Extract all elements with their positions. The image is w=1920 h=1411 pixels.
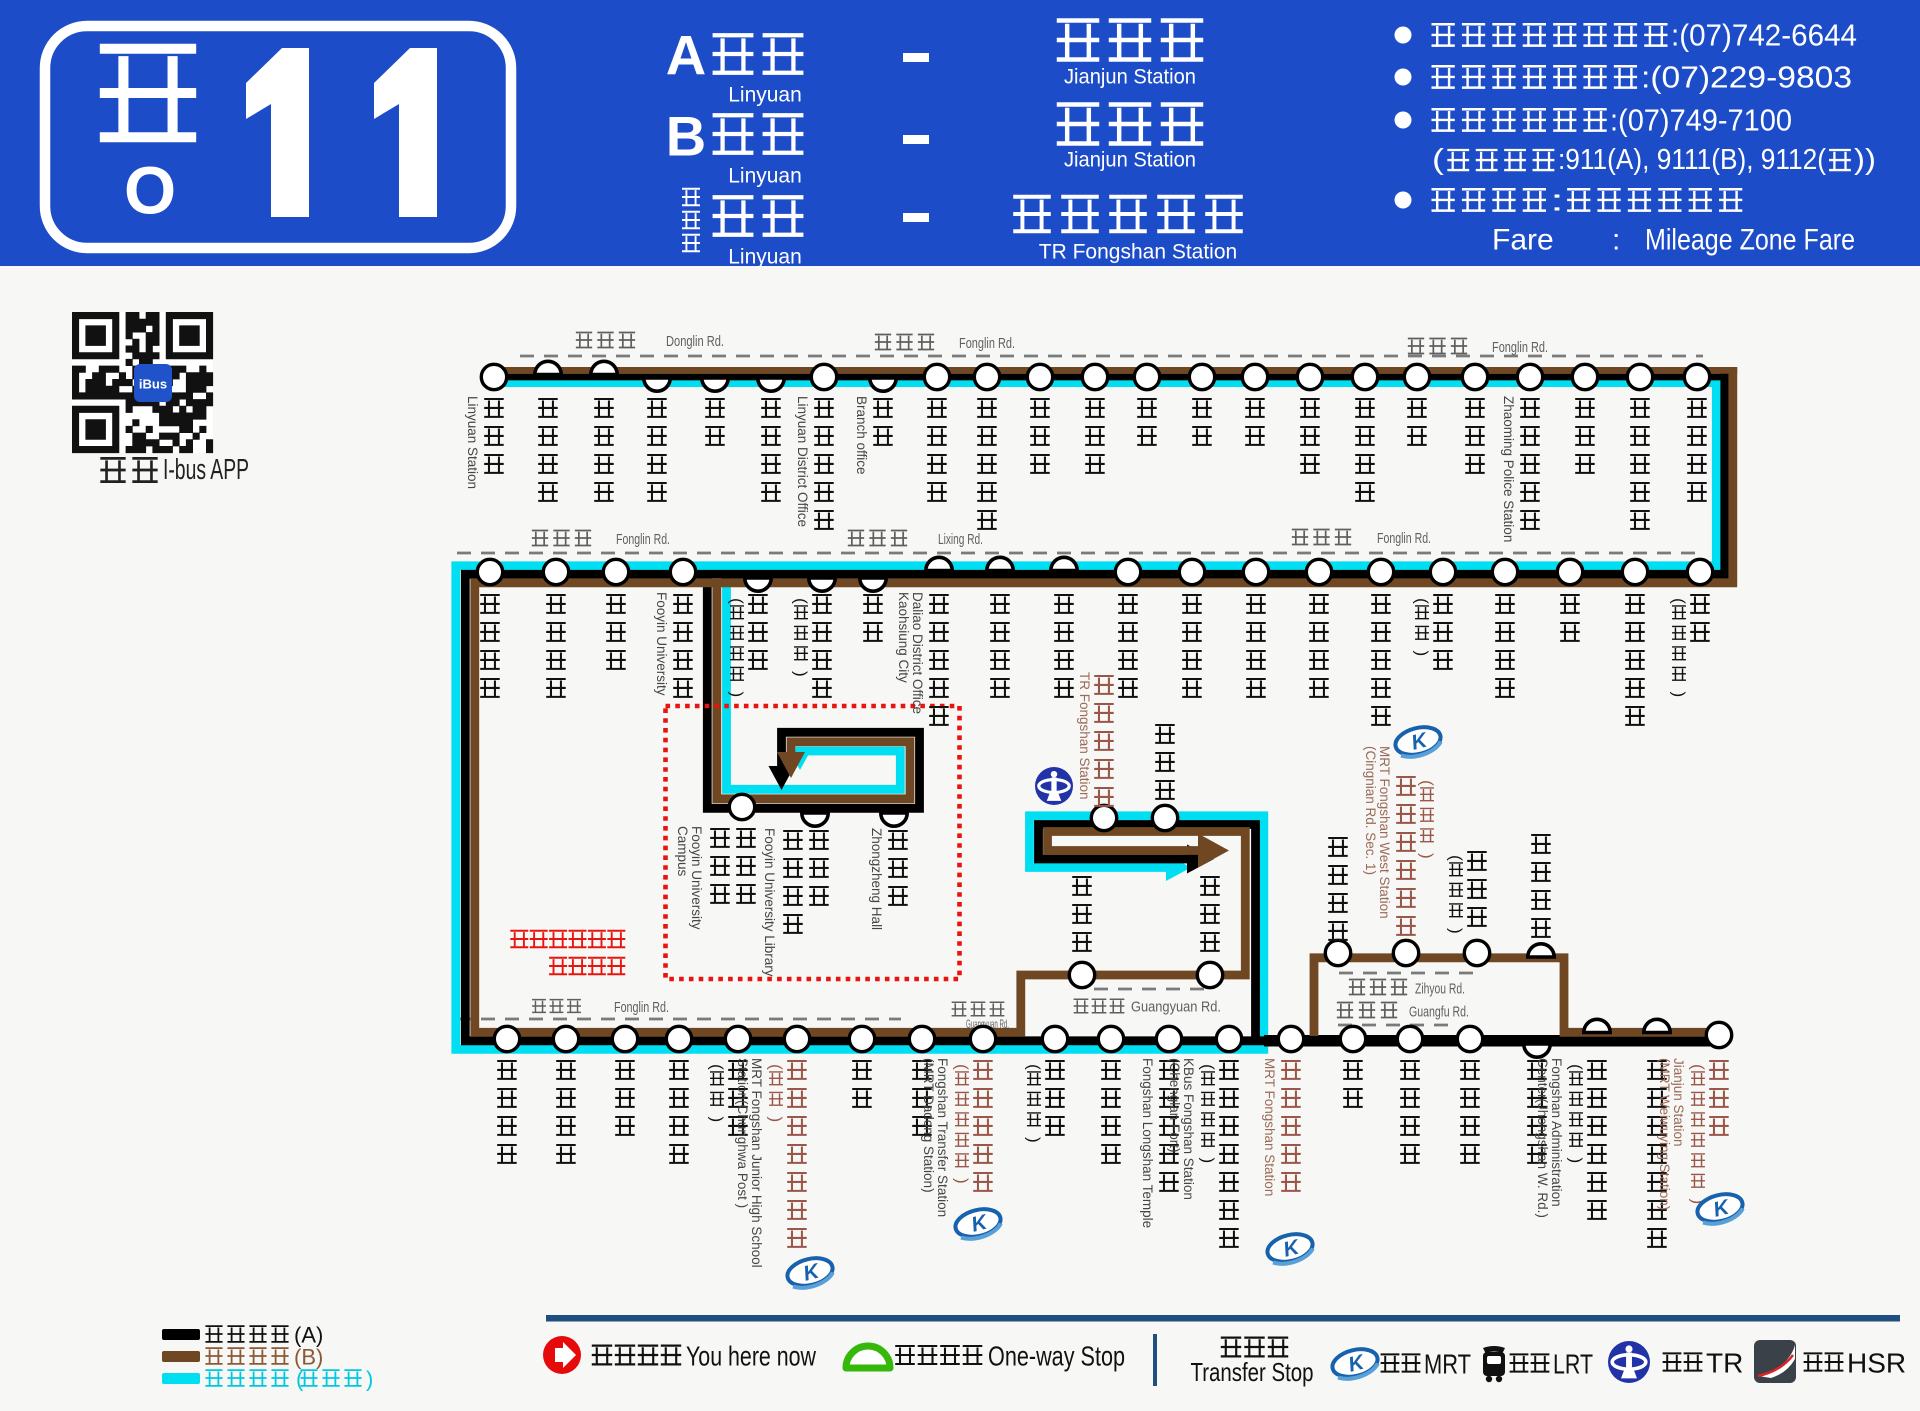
svg-text:HSR: HSR	[1847, 1348, 1906, 1379]
svg-text:Campus: Campus	[675, 826, 690, 877]
svg-text:Fare: Fare	[1492, 224, 1554, 257]
svg-text:Fongshan Longshan Temple: Fongshan Longshan Temple	[1140, 1058, 1155, 1228]
svg-text:): )	[1418, 853, 1437, 859]
svg-text:): )	[1025, 1137, 1044, 1143]
svg-text:(: (	[1199, 1064, 1218, 1070]
svg-text:Linyuan: Linyuan	[728, 84, 802, 107]
svg-text:Linyuan District Office: Linyuan District Office	[795, 396, 810, 527]
svg-text:(: (	[1025, 1064, 1044, 1070]
svg-text:TR Fongshan Station: TR Fongshan Station	[1077, 672, 1092, 800]
svg-text:(: (	[1670, 598, 1689, 604]
svg-text:(MRT Dadong Station): (MRT Dadong Station)	[921, 1058, 936, 1193]
svg-text:Fooyin University: Fooyin University	[654, 592, 669, 696]
svg-text:MRT Fongshan Station: MRT Fongshan Station	[1262, 1058, 1277, 1196]
svg-text:Fooyin University: Fooyin University	[689, 826, 704, 930]
svg-text:Zihyou Rd.: Zihyou Rd.	[1415, 981, 1465, 998]
svg-text:(: (	[1413, 598, 1432, 604]
svg-text:LRT: LRT	[1553, 1349, 1593, 1380]
svg-text:MRT Fongshan West Station: MRT Fongshan West Station	[1377, 746, 1392, 919]
svg-text:You here now: You here now	[686, 1341, 817, 1372]
svg-text:Lixing Rd.: Lixing Rd.	[938, 532, 983, 548]
svg-text:Branch office: Branch office	[854, 396, 869, 475]
svg-text:): )	[708, 1116, 727, 1122]
svg-text:(: (	[708, 1064, 727, 1070]
svg-text:): )	[366, 1367, 373, 1392]
svg-text:): )	[1567, 1157, 1586, 1163]
svg-text:): )	[728, 691, 747, 697]
svg-text:Fonglin Rd.: Fonglin Rd.	[616, 532, 670, 548]
svg-text:Jianjun Station: Jianjun Station	[1064, 149, 1196, 172]
svg-text:I-bus APP: I-bus APP	[163, 454, 249, 486]
svg-text:A: A	[666, 24, 706, 87]
svg-text:Jianjun Station: Jianjun Station	[1064, 66, 1196, 89]
svg-text:Fonglin Rd.: Fonglin Rd.	[959, 336, 1015, 352]
svg-text:): )	[1447, 928, 1466, 934]
svg-text:MRT Fongshan Junior High Schoo: MRT Fongshan Junior High School	[749, 1058, 764, 1268]
svg-text:(: (	[1432, 144, 1444, 176]
svg-text:Fonglin Rd.: Fonglin Rd.	[1492, 340, 1548, 356]
svg-text:): )	[1670, 691, 1689, 697]
svg-text:(Cingnian Rd. Sec. 1): (Cingnian Rd. Sec. 1)	[1363, 746, 1378, 875]
svg-text:(: (	[1689, 1064, 1708, 1070]
svg-text:Zhaoming Police Station: Zhaoming Police Station	[1501, 396, 1516, 542]
svg-text::: :	[1550, 183, 1564, 218]
svg-text:Fooyin University Library: Fooyin University Library	[762, 828, 777, 977]
svg-text:(: (	[767, 1064, 786, 1070]
svg-text:Station(Chunghwa Post ): Station(Chunghwa Post )	[735, 1058, 750, 1208]
svg-text:One-way Stop: One-way Stop	[988, 1341, 1125, 1372]
svg-text:): )	[1413, 650, 1432, 656]
svg-text:): )	[792, 671, 811, 677]
svg-text:(: (	[792, 598, 811, 604]
svg-text:(: (	[953, 1064, 972, 1070]
svg-text:(: (	[1567, 1064, 1586, 1070]
svg-text:Fonglin Rd.: Fonglin Rd.	[614, 1000, 669, 1016]
svg-text:): )	[1199, 1157, 1218, 1163]
svg-text:Linyuan: Linyuan	[728, 246, 802, 269]
svg-text:Mileage Zone Fare: Mileage Zone Fare	[1645, 224, 1855, 257]
svg-text:Linyuan Station: Linyuan Station	[465, 396, 480, 489]
svg-text:B: B	[666, 105, 706, 168]
svg-text:KBus Fongshan Station: KBus Fongshan Station	[1181, 1058, 1196, 1200]
svg-text:)): ))	[1854, 144, 1876, 176]
svg-text:): )	[953, 1178, 972, 1184]
svg-text:TR Fongshan Station: TR Fongshan Station	[1039, 241, 1237, 264]
svg-text:Center(Jhongshan W. Rd.): Center(Jhongshan W. Rd.)	[1535, 1058, 1550, 1218]
svg-text:iBus: iBus	[139, 377, 167, 392]
svg-text:Donglin Rd.: Donglin Rd.	[666, 334, 724, 350]
svg-text:O: O	[124, 154, 176, 229]
svg-text:TR: TR	[1706, 1348, 1743, 1379]
svg-text:Jianjun Station: Jianjun Station	[1671, 1058, 1686, 1147]
svg-text::: :	[1612, 224, 1620, 257]
svg-text:): )	[767, 1116, 786, 1122]
svg-text:(: (	[728, 598, 747, 604]
svg-text:(Chenglan Fort): (Chenglan Fort)	[1167, 1058, 1182, 1153]
svg-text::(07)229-9803: :(07)229-9803	[1641, 60, 1852, 95]
svg-text:Fongshan Transfer Station: Fongshan Transfer Station	[935, 1058, 950, 1217]
svg-text:Guangfu Rd.: Guangfu Rd.	[1409, 1004, 1469, 1021]
svg-text:Linyuan: Linyuan	[728, 165, 802, 188]
svg-text:Fonglin Rd.: Fonglin Rd.	[1377, 531, 1431, 547]
svg-text::911(A), 9111(B), 9112(: :911(A), 9111(B), 9112(	[1558, 144, 1826, 176]
svg-text:Zhongzheng Hall: Zhongzheng Hall	[869, 828, 884, 930]
svg-text:(: (	[1447, 855, 1466, 861]
svg-text:MRT: MRT	[1424, 1349, 1471, 1380]
svg-text:(MRT Weiwuying Station): (MRT Weiwuying Station)	[1657, 1058, 1672, 1210]
svg-text:Transfer Stop: Transfer Stop	[1191, 1357, 1314, 1387]
svg-text:Daliao District Office: Daliao District Office	[910, 592, 925, 714]
svg-text:Kaohsiung City: Kaohsiung City	[896, 592, 911, 683]
svg-text:(: (	[1418, 780, 1437, 786]
svg-text::(07)749-7100: :(07)749-7100	[1610, 103, 1792, 138]
svg-text:Guangyuan Rd.: Guangyuan Rd.	[1131, 999, 1221, 1016]
svg-text:Fongshan Administration: Fongshan Administration	[1549, 1058, 1564, 1207]
svg-text::(07)742-6644: :(07)742-6644	[1671, 18, 1857, 53]
